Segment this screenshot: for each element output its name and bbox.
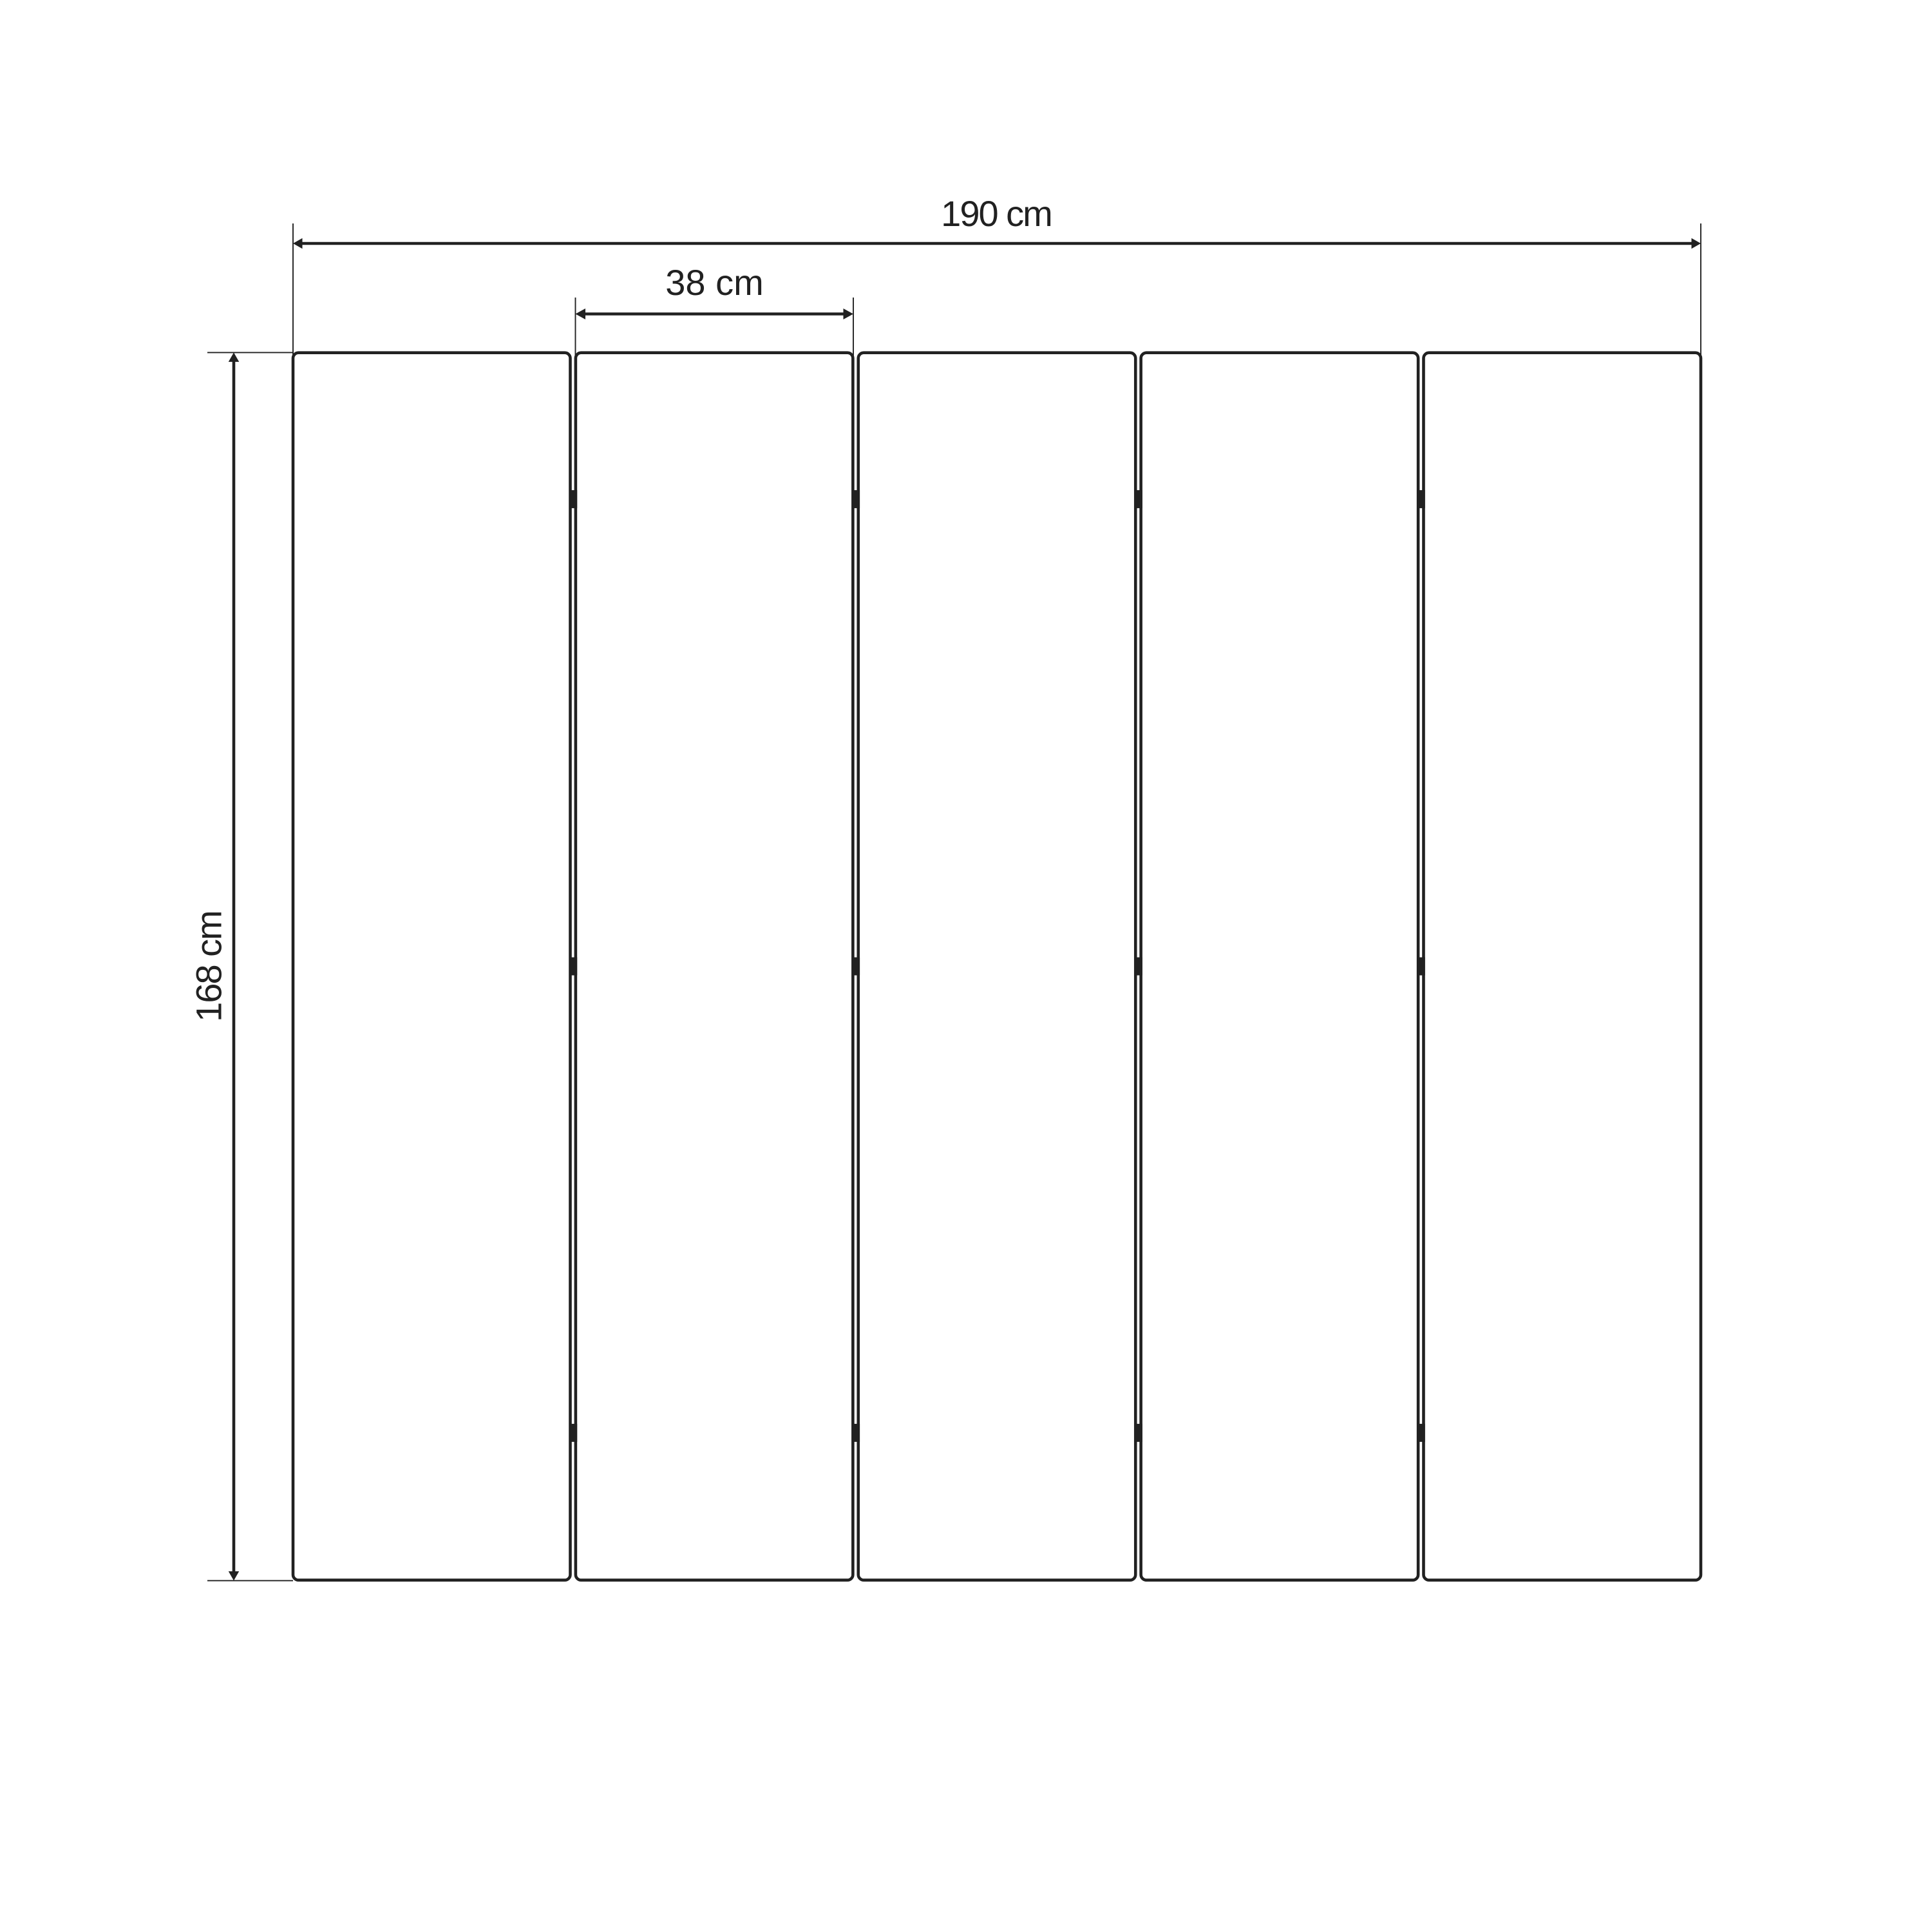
svg-text:168 cm: 168 cm (189, 911, 229, 1022)
svg-text:190 cm: 190 cm (941, 193, 1052, 234)
svg-text:38 cm: 38 cm (665, 262, 764, 303)
